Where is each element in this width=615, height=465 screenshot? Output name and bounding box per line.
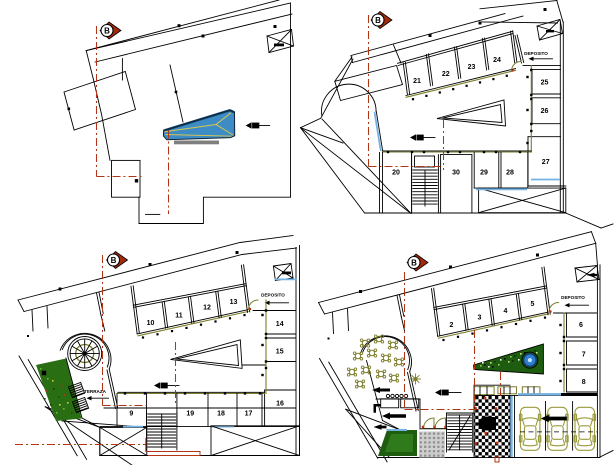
svg-text:13: 13: [230, 299, 238, 306]
svg-text:20: 20: [392, 169, 400, 176]
svg-text:7: 7: [582, 352, 586, 359]
svg-text:16: 16: [276, 401, 284, 408]
svg-text:B: B: [375, 16, 381, 25]
svg-text:5: 5: [531, 301, 535, 308]
svg-text:28: 28: [506, 169, 514, 176]
svg-text:29: 29: [480, 169, 488, 176]
svg-text:21: 21: [413, 78, 421, 85]
svg-text:DEPOSITO: DEPOSITO: [561, 295, 585, 300]
svg-text:B: B: [111, 256, 117, 265]
svg-text:B: B: [411, 258, 417, 267]
svg-text:6: 6: [579, 322, 583, 329]
svg-text:DEPOSITO: DEPOSITO: [524, 51, 548, 56]
svg-text:TERRAZA: TERRAZA: [84, 389, 107, 394]
svg-text:23: 23: [468, 64, 476, 71]
svg-text:12: 12: [203, 305, 211, 312]
svg-text:B: B: [104, 26, 110, 35]
svg-text:2: 2: [450, 322, 454, 329]
svg-text:8: 8: [582, 379, 586, 386]
svg-text:19: 19: [186, 411, 194, 418]
svg-text:10: 10: [147, 320, 155, 327]
svg-text:24: 24: [493, 57, 501, 64]
svg-text:3: 3: [478, 315, 482, 322]
svg-text:14: 14: [276, 321, 284, 328]
svg-text:11: 11: [175, 313, 183, 320]
svg-text:22: 22: [442, 71, 450, 78]
svg-text:18: 18: [217, 411, 225, 418]
svg-text:30: 30: [452, 169, 460, 176]
svg-text:9: 9: [129, 411, 133, 418]
svg-text:DEPOSITO: DEPOSITO: [261, 293, 285, 298]
svg-text:17: 17: [245, 411, 253, 418]
svg-text:27: 27: [542, 159, 550, 166]
svg-text:15: 15: [276, 349, 284, 356]
svg-text:4: 4: [504, 308, 508, 315]
svg-text:26: 26: [541, 108, 549, 115]
svg-text:25: 25: [541, 80, 549, 87]
